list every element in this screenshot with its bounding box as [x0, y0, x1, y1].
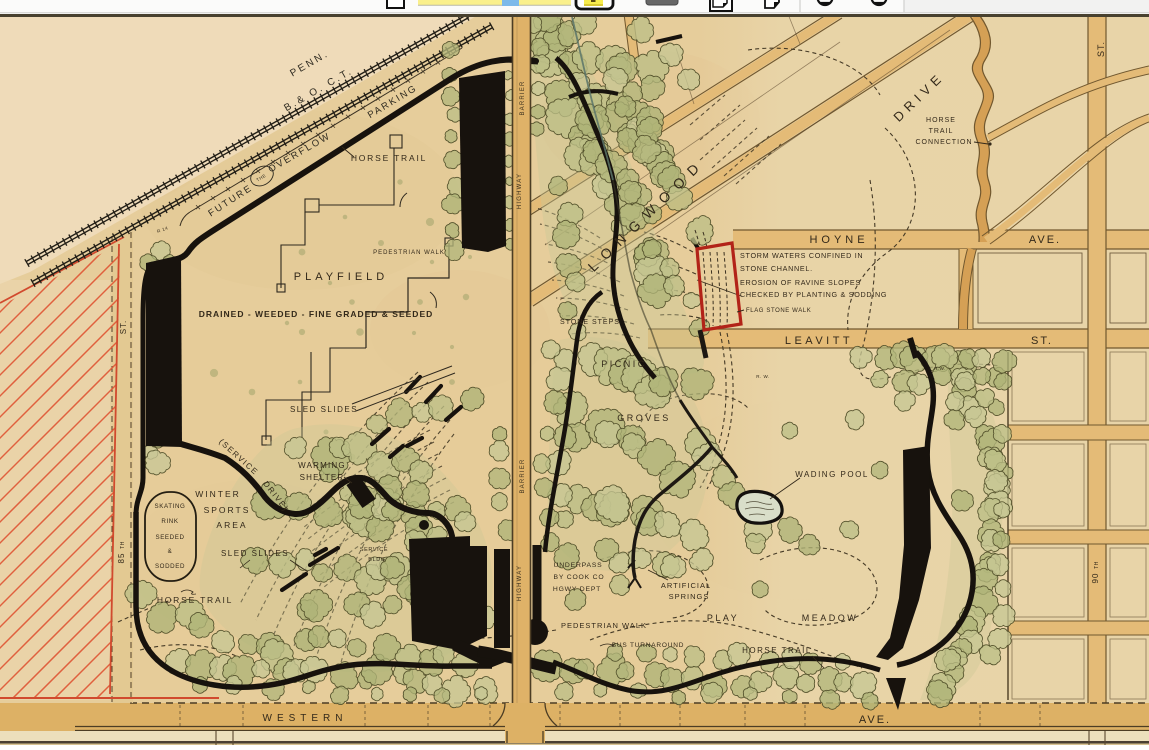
svg-text:AVE.: AVE.	[1029, 234, 1061, 246]
svg-text:SPORTS: SPORTS	[204, 505, 251, 515]
svg-text:DRAINED - WEEDED - FINE GRADED: DRAINED - WEEDED - FINE GRADED & SEEDED	[199, 309, 434, 319]
svg-text:WADING POOL: WADING POOL	[795, 470, 869, 479]
svg-text:SLED SLIDES: SLED SLIDES	[221, 549, 289, 558]
svg-text:ST.: ST.	[119, 320, 128, 335]
svg-text:LEAVITT: LEAVITT	[785, 335, 853, 347]
svg-text:PLAY: PLAY	[707, 613, 739, 623]
svg-text:BLDG: BLDG	[368, 557, 385, 563]
svg-text:WESTERN: WESTERN	[263, 713, 348, 724]
svg-text:FLAG STONE WALK: FLAG STONE WALK	[746, 308, 811, 314]
svg-text:PLAYFIELD: PLAYFIELD	[294, 271, 389, 283]
svg-text:R.W.: R.W.	[934, 366, 946, 371]
svg-text:SKATING: SKATING	[155, 503, 186, 510]
svg-text:CONNECTION: CONNECTION	[915, 139, 972, 146]
svg-text:PICNIC: PICNIC	[601, 359, 647, 369]
svg-text:TH: TH	[120, 541, 126, 549]
svg-text:WARMING: WARMING	[298, 461, 346, 470]
svg-text:HORSE TRAIL: HORSE TRAIL	[351, 153, 427, 163]
svg-text:UNDERPASS: UNDERPASS	[554, 562, 603, 569]
svg-text:PEDESTRIAN WALK: PEDESTRIAN WALK	[561, 621, 647, 630]
svg-text:HIGHWAY: HIGHWAY	[517, 173, 523, 209]
svg-text:RINK: RINK	[161, 518, 178, 525]
svg-text:HGWY DEPT: HGWY DEPT	[553, 586, 601, 593]
svg-text:TH: TH	[1094, 561, 1100, 569]
svg-text:TRAIL: TRAIL	[929, 128, 954, 135]
svg-text:ST.: ST.	[1096, 41, 1106, 57]
svg-text:BARRIER: BARRIER	[520, 80, 526, 115]
svg-text:AREA: AREA	[216, 520, 247, 530]
svg-text:&: &	[168, 548, 173, 555]
svg-text:HORSE: HORSE	[926, 117, 956, 124]
svg-text:SPRINGS: SPRINGS	[669, 592, 710, 601]
svg-text:EROSION OF RAVINE SLOPES: EROSION OF RAVINE SLOPES	[740, 278, 861, 287]
svg-text:R. W.: R. W.	[756, 374, 770, 379]
svg-text:ARTIFICIAL: ARTIFICIAL	[661, 581, 711, 590]
svg-text:AVE.: AVE.	[859, 714, 891, 726]
svg-text:BY COOK CO: BY COOK CO	[554, 574, 605, 581]
svg-text:85: 85	[117, 553, 126, 564]
svg-text:SLED SLIDES: SLED SLIDES	[290, 405, 358, 414]
svg-text:SEEDED: SEEDED	[155, 534, 184, 541]
svg-text:SODDED: SODDED	[155, 563, 185, 570]
svg-text:SHELTER: SHELTER	[300, 473, 345, 482]
svg-text:PEDESTRIAN WALK: PEDESTRIAN WALK	[373, 250, 445, 256]
svg-text:HIGHWAY: HIGHWAY	[517, 565, 523, 601]
svg-text:SERVICE: SERVICE	[360, 547, 388, 553]
svg-text:MEADOW: MEADOW	[802, 613, 859, 623]
svg-text:BUS TURNAROUND: BUS TURNAROUND	[612, 642, 684, 649]
svg-text:WINTER: WINTER	[195, 489, 241, 499]
svg-text:STORM WATERS CONFINED IN: STORM WATERS CONFINED IN	[740, 251, 863, 260]
svg-text:HORSE TRAIL: HORSE TRAIL	[157, 595, 233, 605]
svg-text:CHECKED BY PLANTING & SODDING: CHECKED BY PLANTING & SODDING	[740, 290, 887, 299]
svg-text:GROVES: GROVES	[617, 413, 671, 423]
svg-text:ST.: ST.	[1031, 335, 1053, 347]
svg-text:HORSE TRAIL: HORSE TRAIL	[742, 646, 812, 655]
svg-text:BARRIER: BARRIER	[520, 458, 526, 493]
svg-text:STONE STEPS: STONE STEPS	[560, 319, 620, 326]
svg-text:HOYNE: HOYNE	[809, 234, 868, 246]
svg-text:STONE CHANNEL.: STONE CHANNEL.	[740, 264, 813, 273]
svg-text:90: 90	[1091, 573, 1100, 584]
